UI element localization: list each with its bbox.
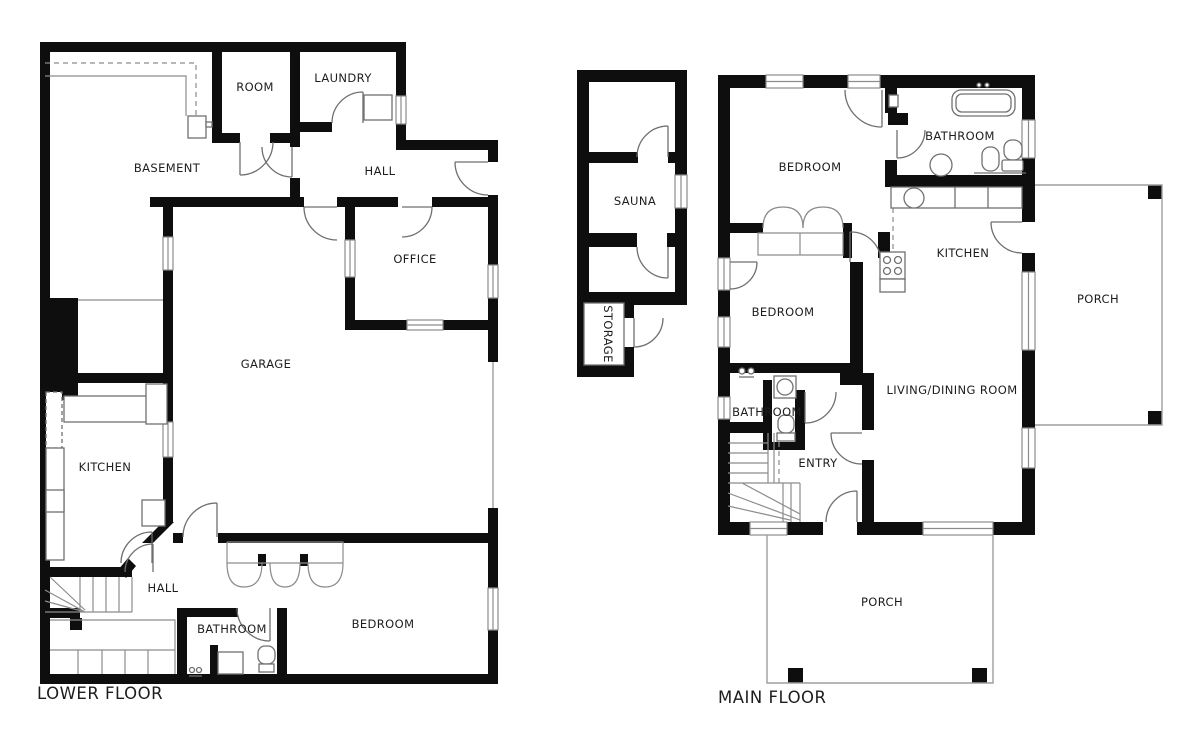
kitchen-counter-lower — [64, 396, 152, 422]
door-garage-hall — [183, 503, 217, 537]
room-label-bedroom-lower: BEDROOM — [352, 617, 415, 631]
kitchen-fridge — [146, 384, 167, 424]
room-label-kitchen-main: KITCHEN — [937, 246, 990, 260]
room-label-bathroom-lower: BATHROOM — [197, 622, 267, 636]
door-bedroom2-closet — [730, 262, 757, 289]
door-basement-hall — [262, 147, 292, 177]
room-label-laundry: LAUNDRY — [314, 71, 372, 85]
stairs-main — [728, 443, 768, 473]
floor-title-main: MAIN FLOOR — [718, 688, 827, 707]
door-front-entry — [826, 491, 857, 522]
porch-bottom-outline — [767, 535, 993, 683]
kitchen-appliance — [142, 500, 165, 526]
room-label-porch-right: PORCH — [1077, 292, 1119, 306]
door-laundry — [332, 92, 363, 123]
door-bathroom1 — [897, 130, 925, 158]
stove — [880, 252, 905, 279]
floor-plan-canvas: BASEMENT ROOM LAUNDRY HALL OFFICE GARAGE… — [0, 0, 1200, 750]
door-sauna-room — [637, 126, 668, 157]
door-sauna-exit — [637, 247, 668, 278]
door-garage — [304, 207, 337, 240]
bathroom1-toilet — [1004, 140, 1022, 160]
stairs-lower — [45, 577, 132, 612]
room-label-bathroom2: BATHROOM — [732, 405, 802, 419]
room-label-basement: BASEMENT — [134, 161, 201, 175]
room-label-storage: STORAGE — [601, 305, 615, 363]
room-label-garage: GARAGE — [241, 357, 292, 371]
understair-closet — [50, 620, 175, 674]
room-label-kitchen-lower: KITCHEN — [79, 460, 132, 474]
room-label-sauna: SAUNA — [614, 194, 656, 208]
room-label-living-dining: LIVING/DINING ROOM — [886, 383, 1017, 397]
room-label-bathroom1: BATHROOM — [925, 129, 995, 143]
door-bedroom2 — [850, 232, 881, 262]
door-porch — [991, 222, 1022, 253]
closet-main-bedroom — [758, 233, 843, 255]
closet-lower-bedroom — [227, 542, 343, 563]
door-bedroom1 — [845, 90, 882, 127]
basement-dashed-line — [45, 63, 196, 116]
room-label-office: OFFICE — [393, 252, 436, 266]
bathroom1-sink — [982, 147, 999, 171]
door-hall-exterior — [455, 162, 488, 195]
room-label-porch-bottom: PORCH — [861, 595, 903, 609]
floor-plan-page: BASEMENT ROOM LAUNDRY HALL OFFICE GARAGE… — [0, 0, 1200, 750]
room-label-room: ROOM — [236, 80, 274, 94]
room-label-hall-upper: HALL — [365, 164, 396, 178]
faucet-lower — [190, 668, 195, 673]
washing-machine — [364, 95, 392, 120]
door-storage — [634, 318, 663, 347]
room-label-bedroom2: BEDROOM — [752, 305, 815, 319]
door-kitchen-diagonal — [121, 532, 152, 563]
toilet-lower — [258, 646, 275, 664]
bathroom2-faucet — [739, 368, 745, 374]
floor-title-lower: LOWER FLOOR — [37, 684, 163, 703]
room-label-entry: ENTRY — [798, 456, 838, 470]
room-label-hall-lower: HALL — [148, 581, 179, 595]
door-room — [240, 142, 273, 175]
door-bathroom2 — [805, 392, 836, 423]
door-office — [402, 207, 432, 237]
kitchen-tall-cabinet — [46, 392, 62, 448]
room-label-bedroom1: BEDROOM — [779, 160, 842, 174]
porches — [493, 185, 1162, 683]
walls-main-floor — [577, 70, 1162, 683]
